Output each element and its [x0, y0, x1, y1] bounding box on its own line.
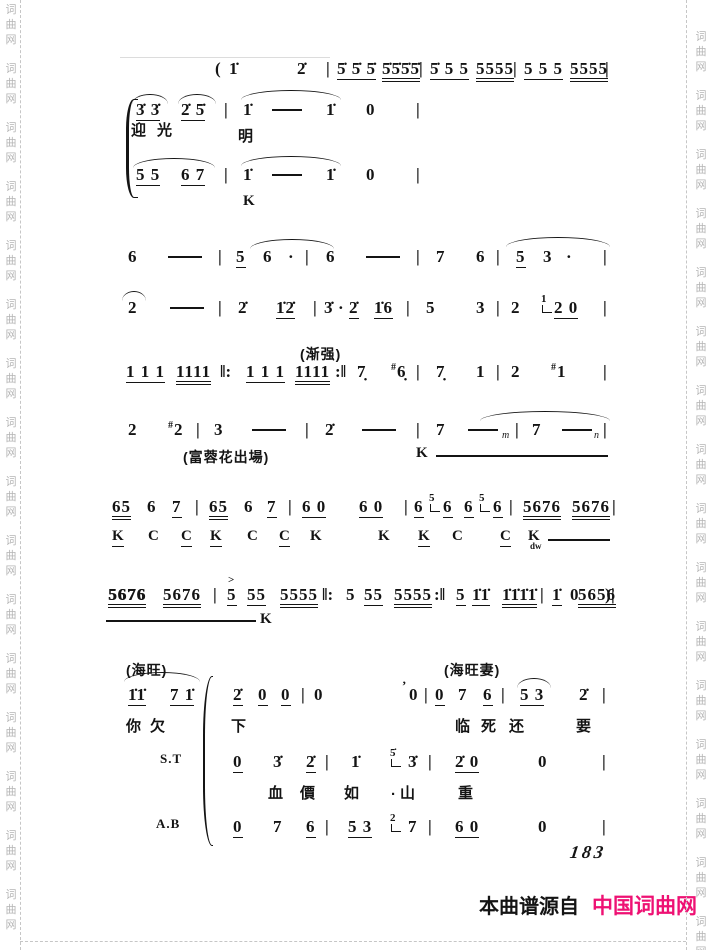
extension-line [548, 539, 610, 541]
slur-arc [506, 237, 610, 247]
extension-line [120, 57, 330, 58]
note-token: 5676 [163, 586, 201, 608]
note-token: 0 [366, 101, 376, 118]
note-token: K [310, 529, 322, 544]
note-token: 2̇ [579, 686, 589, 703]
note-token: 1̇1̇1̇1̇ [502, 586, 537, 608]
barline: | [603, 299, 608, 316]
note-token: C [247, 529, 258, 544]
letter-mark: K [243, 193, 255, 210]
lyric-char: 明 [238, 125, 253, 146]
note-token: 65 [209, 498, 228, 520]
watermark-text: 词 曲 网 [3, 121, 19, 166]
footer-brand-link[interactable]: 中国词曲网 [592, 896, 697, 917]
note-token: 2̇ [325, 421, 335, 438]
note-token: 5555 [570, 60, 608, 82]
note-token: 0 [233, 753, 243, 773]
letter-mark: K [260, 611, 272, 628]
lyric-char: 如 [344, 782, 359, 803]
note-token: 6 [443, 498, 453, 518]
note-token: 1111 [176, 363, 211, 385]
note-token: 5555 [476, 60, 514, 82]
barline: | [603, 363, 608, 380]
note-token: 6 [464, 498, 474, 518]
barline: | [540, 586, 545, 603]
note-token: 5 3 [520, 686, 544, 706]
note-token: :‖ [335, 363, 346, 380]
note-token: 2 [128, 299, 138, 316]
sustain-dash [272, 109, 302, 111]
note-token: :‖ [434, 586, 445, 603]
note-token: 1̇ [229, 60, 239, 77]
watermark-text: 词 曲 网 [3, 357, 19, 402]
note-token: 5676 [572, 498, 610, 520]
note-token: 7 [532, 421, 542, 438]
sustain-dash [168, 256, 202, 258]
note-token: 6 [476, 248, 486, 265]
note-token: 5 [346, 586, 356, 603]
note-token: 6 [244, 498, 254, 515]
note-token: 5̇5̇5̇5̇ [382, 60, 420, 82]
note-token: 7 [172, 498, 182, 518]
note-token: ‖: [220, 363, 231, 380]
note-token: 0 [538, 753, 548, 770]
note-token: 0 [258, 686, 268, 706]
score-sheet: 本曲谱源自 中国词曲网 (1̇2̇|5̇ 5̇ 5̇5̇5̇5̇5̇|5̇ 5 … [0, 0, 710, 950]
note-token: 5 3 [348, 818, 372, 838]
watermark-text: 词 曲 网 [693, 325, 709, 370]
note-token: 1̇ [552, 586, 562, 606]
note-token: 6 [263, 248, 273, 265]
note-token: 7̣ [357, 363, 367, 380]
grace-note: 1 [541, 294, 549, 314]
note-token: 6 [128, 248, 138, 265]
note-token: 1̇ [351, 753, 361, 770]
watermark-text: 词 曲 网 [3, 3, 19, 48]
note-token: 1̇1̇ [128, 686, 146, 706]
note-token: 0 [314, 686, 324, 703]
note-token: 1̇6 [374, 299, 393, 319]
barline: | [313, 299, 318, 316]
note-token: 5̇ 5 5 [430, 60, 469, 80]
note-token: 6 0 [302, 498, 326, 518]
watermark-text: 词 曲 网 [3, 711, 19, 756]
note-token: 1̇ [326, 166, 336, 183]
note-token: K [378, 529, 390, 544]
note-token: 5 [426, 299, 436, 316]
lyric-char: 血 [268, 782, 283, 803]
grace-note: 5̇ [390, 748, 398, 768]
note-token: 7 [273, 818, 283, 835]
sharp-sign: # [391, 362, 396, 373]
note-token: 0 [409, 686, 419, 703]
watermark-text: 词 曲 网 [3, 298, 19, 343]
barline: | [515, 421, 520, 438]
system-brace [203, 676, 213, 846]
grace-note: 5 [429, 493, 437, 513]
barline: | [602, 818, 607, 835]
note-token: 1̇2̇ [276, 299, 295, 319]
watermark-text: 词 曲 网 [693, 30, 709, 75]
note-token: 5 5 5 [524, 60, 563, 80]
watermark-text: 词 曲 网 [693, 915, 709, 950]
sustain-dash [170, 307, 204, 309]
sustain-dash [468, 429, 498, 431]
watermark-text: 词 曲 网 [693, 797, 709, 842]
note-token: 5 [456, 586, 466, 606]
slur-arc [517, 678, 551, 688]
note-token: 6 0 [455, 818, 479, 838]
sustain-dash [366, 256, 400, 258]
note-token: 3 [214, 421, 224, 438]
extension-line [106, 620, 256, 622]
note-token: 7̣ [436, 363, 446, 380]
note-token: · [288, 248, 295, 265]
voice-label: S.T [160, 751, 182, 767]
slur-arc [122, 291, 146, 301]
note-token: 5 [516, 248, 526, 268]
barline: | [196, 421, 201, 438]
note-token: 5 5 [136, 166, 160, 186]
accent-mark: > [228, 575, 234, 586]
note-token: 7 1̇ [170, 686, 194, 706]
barline: | [602, 686, 607, 703]
sustain-dash [252, 429, 286, 431]
slur-arc [241, 156, 341, 166]
note-token: 2 0 [554, 299, 578, 319]
note-token: K [112, 529, 124, 547]
barline: | [416, 421, 421, 438]
note-token: 5> [227, 586, 237, 606]
note-token: K [418, 529, 430, 547]
barline: | [419, 60, 424, 77]
note-token: 7 [458, 686, 468, 703]
barline: | [509, 498, 514, 515]
barline: | [305, 248, 310, 265]
lyric-char: 你 [126, 715, 141, 736]
note-token: 0 [281, 686, 291, 706]
note-token: #2 [168, 421, 184, 438]
watermark-text: 词 曲 网 [693, 561, 709, 606]
watermark-text: 词 曲 网 [693, 502, 709, 547]
left-border-line [20, 0, 21, 950]
note-token: 5555 [394, 586, 432, 608]
slur-arc [241, 90, 341, 100]
barline: | [406, 299, 411, 316]
note-token: 5676 [523, 498, 561, 520]
watermark-text: 词 曲 网 [693, 384, 709, 429]
watermark-text: 词 曲 网 [3, 475, 19, 520]
barline: | [603, 421, 608, 438]
note-token: 5555 [280, 586, 318, 608]
note-token: C [452, 529, 463, 544]
slur-arc [178, 94, 216, 104]
note-token: C [148, 529, 159, 544]
barline: | [288, 498, 293, 515]
sharp-sign: # [551, 362, 556, 373]
note-token: 55 [247, 586, 266, 606]
barline: | [612, 498, 617, 515]
note-token: 6 [326, 248, 336, 265]
watermark-text: 词 曲 网 [3, 62, 19, 107]
watermark-text: 词 曲 网 [3, 652, 19, 697]
barline: | [218, 299, 223, 316]
lyric-char: 欠 [150, 715, 165, 736]
watermark-text: 词 曲 网 [3, 829, 19, 874]
barline: | [416, 101, 421, 118]
note-token: 0 [233, 818, 243, 838]
sustain-dash [272, 174, 302, 176]
barline: | [326, 60, 331, 77]
stage-label: (海旺妻) [444, 660, 500, 680]
note-token: 3 [476, 299, 486, 316]
lyric-char: 光 [157, 119, 172, 140]
note-token: C [181, 529, 192, 547]
note-token: 2̇ [306, 753, 316, 773]
barline: | [496, 248, 501, 265]
barline: | [404, 498, 409, 515]
system-bracket [126, 99, 138, 198]
lyric-char: 山 [400, 782, 415, 803]
lyric-char: 重 [458, 782, 473, 803]
barline: | [301, 686, 306, 703]
stage-label: (渐强) [300, 344, 341, 364]
watermark-text: 词 曲 网 [3, 534, 19, 579]
barline: | [424, 686, 429, 703]
watermark-text: 词 曲 网 [3, 593, 19, 638]
grace-note: 2 [390, 813, 398, 833]
note-token: 6 [493, 498, 503, 518]
note-token: m [502, 430, 510, 441]
barline: | [416, 166, 421, 183]
note-token: 0 [538, 818, 548, 835]
barline: | [305, 421, 310, 438]
watermark-text: 词 曲 网 [693, 443, 709, 488]
note-token: 2̇ [349, 299, 359, 319]
watermark-text: 词 曲 网 [3, 239, 19, 284]
watermark-text: 词 曲 网 [693, 148, 709, 193]
note-token: 1̇ [243, 166, 253, 183]
lyric-char: 下 [231, 715, 246, 736]
barline: | [496, 299, 501, 316]
watermark-text: 词 曲 网 [3, 416, 19, 461]
barline: | [416, 363, 421, 380]
dynamic-mark: dw [530, 541, 542, 551]
note-token: 6 [306, 818, 316, 838]
note-token: ( [215, 60, 222, 77]
barline: | [416, 248, 421, 265]
note-token: 2̇ [297, 60, 307, 77]
slur-arc [133, 158, 215, 168]
note-token: 1 1 1 [126, 363, 165, 383]
barline: | [224, 101, 229, 118]
note-token: 6 [414, 498, 424, 518]
note-token: 7 [436, 421, 446, 438]
barline: | [428, 753, 433, 770]
note-token: ‖: [322, 586, 333, 603]
extension-line [436, 455, 608, 457]
breath-mark: ’ [402, 678, 406, 694]
note-token: 6 7 [181, 166, 205, 186]
footer-source-text: 本曲谱源自 [479, 897, 579, 917]
note-token: 2̇ 0 [455, 753, 479, 773]
barline: | [428, 818, 433, 835]
watermark-text: 词 曲 网 [3, 888, 19, 933]
note-token: 5 [236, 248, 246, 268]
watermark-text: 词 曲 网 [3, 770, 19, 815]
note-token: 3̇ 3̇ [136, 101, 160, 121]
note-token: 3̇ [324, 299, 334, 316]
barline: | [513, 60, 518, 77]
note-token: 2̇ 5̇ [181, 101, 205, 121]
sharp-sign: # [168, 420, 173, 431]
note-token: 3̇ [273, 753, 283, 770]
note-token: 3 [543, 248, 553, 265]
note-token: 65 [112, 498, 131, 520]
slur-arc [480, 411, 610, 421]
note-token: 6 0 [359, 498, 383, 518]
note-token: 2̇ [238, 299, 248, 316]
extension-line [20, 941, 686, 942]
voice-label: A.B [156, 816, 180, 832]
lyric-char: 要 [576, 715, 591, 736]
sustain-dash [562, 429, 592, 431]
page-number: 183 [569, 842, 608, 863]
note-token: 2 [511, 363, 521, 380]
note-token: 0 [366, 166, 376, 183]
note-token: 2 [511, 299, 521, 316]
watermark-text: 词 曲 网 [693, 679, 709, 724]
stage-label: (富蓉花出場) [183, 447, 269, 467]
watermark-text: 词 曲 网 [693, 207, 709, 252]
barline: | [195, 498, 200, 515]
watermark-text: 词 曲 网 [3, 180, 19, 225]
note-token: 1̇ [326, 101, 336, 118]
note-token: 1̇1̇ [472, 586, 490, 606]
slur-arc [250, 239, 334, 249]
barline: | [218, 248, 223, 265]
note-token: 7 [267, 498, 277, 518]
barline: | [605, 60, 610, 77]
watermark-text: 词 曲 网 [693, 738, 709, 783]
letter-mark: K [416, 445, 428, 462]
note-token: 1̇ [243, 101, 253, 118]
lyric-char: 死 [481, 715, 496, 736]
note-token: 6 [147, 498, 157, 515]
note-token: · [566, 248, 573, 265]
note-token: #6̣ [391, 363, 407, 380]
note-token: C [500, 529, 511, 547]
note-token: 1 [476, 363, 486, 380]
right-border-line [686, 0, 687, 950]
lyric-char: 临 [455, 715, 470, 736]
note-token: C [279, 529, 290, 547]
barline: | [213, 586, 218, 603]
note-token: 1 1 1 [246, 363, 285, 383]
note-token: 3̇ [408, 753, 418, 770]
barline: | [325, 818, 330, 835]
lyric-char: 價 [300, 782, 315, 803]
barline: | [501, 686, 506, 703]
watermark-text: 词 曲 网 [693, 266, 709, 311]
note-token: 0 [435, 686, 445, 706]
barline: | [496, 363, 501, 380]
watermark-text: 词 曲 网 [693, 89, 709, 134]
note-token: 55 [364, 586, 383, 606]
note-token: · [338, 299, 345, 316]
lyric-char: 还 [509, 715, 524, 736]
note-token: 1111 [295, 363, 330, 385]
barline: | [325, 753, 330, 770]
note-token: n [594, 430, 600, 441]
watermark-text: 词 曲 网 [693, 856, 709, 901]
grace-note: 5 [479, 493, 487, 513]
note-token: 7 [436, 248, 446, 265]
note-token: 5676 [108, 586, 146, 608]
sustain-dash [362, 429, 396, 431]
watermark-text: 词 曲 网 [693, 620, 709, 665]
note-token: K [210, 529, 222, 547]
lyric-char: · [391, 786, 396, 803]
note-token: 5̇ 5̇ 5̇ [337, 60, 376, 80]
note-token: 2 [128, 421, 138, 438]
note-token: 6 [483, 686, 493, 706]
barline: | [603, 248, 608, 265]
note-token: #1 [551, 363, 567, 380]
barline: | [611, 586, 616, 603]
note-token: 7 [408, 818, 418, 835]
barline: | [602, 753, 607, 770]
note-token: 2̇ [233, 686, 243, 706]
barline: | [224, 166, 229, 183]
